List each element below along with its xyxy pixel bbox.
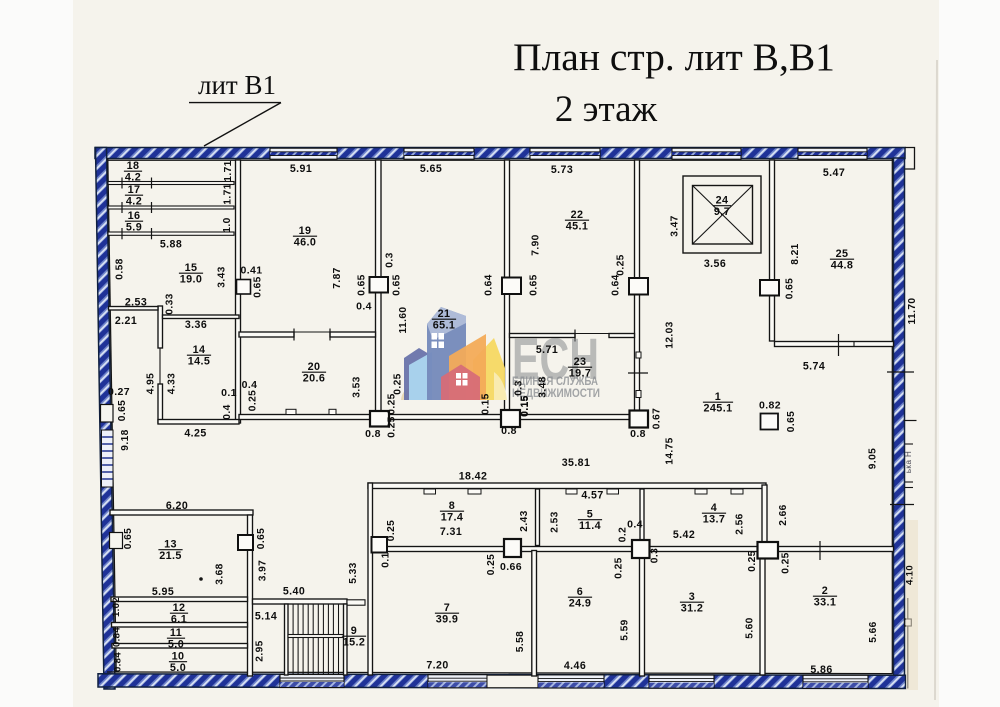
svg-text:0.27: 0.27	[108, 386, 130, 398]
svg-text:0.25: 0.25	[747, 550, 758, 571]
svg-text:5.66: 5.66	[868, 621, 879, 642]
svg-text:0.3: 0.3	[514, 380, 525, 395]
svg-text:5.91: 5.91	[290, 163, 312, 175]
svg-text:2.43: 2.43	[519, 510, 530, 531]
svg-text:0.82: 0.82	[759, 400, 781, 412]
svg-text:0.25: 0.25	[614, 557, 625, 578]
svg-text:7.90: 7.90	[531, 234, 542, 255]
svg-text:17.4: 17.4	[441, 511, 464, 523]
svg-text:3: 3	[689, 591, 695, 603]
svg-text:2.53: 2.53	[125, 297, 147, 309]
svg-text:245.1: 245.1	[703, 402, 732, 414]
svg-text:4.33: 4.33	[167, 373, 178, 394]
svg-text:0.33: 0.33	[165, 293, 176, 314]
svg-text:ька Н: ька Н	[904, 451, 913, 473]
svg-text:14.5: 14.5	[188, 355, 211, 367]
svg-text:0.65: 0.65	[357, 274, 368, 295]
svg-text:3.97: 3.97	[258, 560, 269, 581]
svg-text:4.95: 4.95	[146, 373, 157, 394]
svg-text:0.84: 0.84	[113, 652, 124, 672]
svg-text:6.1: 6.1	[171, 613, 187, 625]
svg-text:7.87: 7.87	[332, 267, 343, 288]
svg-text:39.9: 39.9	[436, 613, 459, 625]
svg-text:21.5: 21.5	[159, 550, 182, 562]
svg-text:20: 20	[308, 361, 321, 373]
svg-text:6.20: 6.20	[166, 500, 188, 512]
svg-text:5.86: 5.86	[810, 664, 832, 676]
svg-text:17: 17	[128, 184, 141, 196]
svg-text:3.43: 3.43	[217, 266, 228, 287]
svg-text:0.4: 0.4	[356, 301, 372, 313]
svg-text:5.9: 5.9	[126, 221, 142, 233]
svg-text:0.65: 0.65	[392, 274, 403, 295]
svg-text:12: 12	[173, 602, 186, 614]
svg-text:2 этаж: 2 этаж	[555, 89, 658, 130]
svg-text:21: 21	[438, 308, 451, 320]
svg-text:4.10: 4.10	[905, 565, 916, 585]
svg-text:План стр. лит В,В1: План стр. лит В,В1	[513, 35, 835, 79]
svg-text:0.64: 0.64	[611, 274, 622, 295]
svg-text:0.65: 0.65	[785, 278, 796, 299]
svg-text:4.2: 4.2	[125, 171, 141, 183]
svg-text:1.02: 1.02	[111, 597, 122, 617]
svg-text:3.68: 3.68	[215, 563, 226, 584]
svg-text:33.1: 33.1	[814, 596, 837, 608]
svg-text:19.7: 19.7	[569, 367, 592, 379]
svg-text:4.2: 4.2	[126, 195, 142, 207]
svg-text:0.4: 0.4	[242, 379, 258, 391]
svg-text:0.8: 0.8	[501, 425, 517, 437]
svg-text:35.81: 35.81	[562, 457, 591, 469]
svg-text:5.47: 5.47	[823, 167, 845, 179]
svg-text:15: 15	[185, 262, 198, 274]
svg-text:5.40: 5.40	[283, 586, 305, 598]
svg-text:23: 23	[574, 356, 587, 368]
svg-text:5.65: 5.65	[420, 163, 442, 175]
svg-text:0.65: 0.65	[123, 528, 134, 549]
svg-text:0.66: 0.66	[500, 561, 522, 573]
svg-text:19: 19	[299, 225, 312, 237]
svg-text:7.31: 7.31	[440, 526, 462, 538]
svg-text:0.64: 0.64	[484, 274, 495, 295]
svg-text:0.15: 0.15	[481, 393, 492, 414]
svg-text:0.25: 0.25	[393, 373, 404, 394]
svg-text:0.1: 0.1	[381, 552, 392, 567]
svg-text:0.65: 0.65	[256, 528, 267, 549]
svg-text:4.46: 4.46	[564, 660, 586, 672]
svg-text:12.03: 12.03	[665, 321, 676, 349]
svg-text:1.71: 1.71	[223, 160, 234, 181]
svg-text:0.41: 0.41	[240, 265, 262, 277]
svg-text:5.0: 5.0	[170, 662, 186, 674]
svg-text:13.7: 13.7	[703, 513, 726, 525]
svg-text:20.6: 20.6	[303, 372, 326, 384]
svg-text:0.25: 0.25	[387, 393, 398, 414]
svg-text:3.56: 3.56	[704, 258, 726, 270]
svg-text:0.65: 0.65	[117, 400, 128, 421]
svg-text:16: 16	[128, 210, 141, 222]
svg-text:14: 14	[193, 344, 206, 356]
svg-text:0.25: 0.25	[386, 520, 397, 541]
svg-text:9.7: 9.7	[714, 206, 730, 218]
svg-text:13: 13	[164, 539, 177, 551]
svg-text:лит В1: лит В1	[198, 70, 276, 100]
svg-text:5.74: 5.74	[803, 361, 825, 373]
svg-text:6: 6	[577, 586, 583, 598]
svg-text:0.58: 0.58	[115, 258, 126, 279]
svg-text:22: 22	[571, 209, 584, 221]
svg-text:0.8: 0.8	[630, 428, 646, 440]
svg-text:4: 4	[711, 502, 717, 514]
svg-text:5: 5	[587, 509, 593, 521]
svg-text:7.20: 7.20	[426, 660, 448, 672]
svg-text:2.66: 2.66	[778, 504, 789, 525]
svg-text:9: 9	[351, 625, 357, 637]
svg-text:5.33: 5.33	[348, 562, 359, 583]
svg-text:5.73: 5.73	[551, 164, 573, 176]
svg-text:19.0: 19.0	[180, 273, 203, 285]
svg-text:5.95: 5.95	[152, 586, 174, 598]
svg-text:18.42: 18.42	[459, 471, 488, 483]
svg-text:46.0: 46.0	[294, 236, 317, 248]
svg-text:5.0: 5.0	[168, 638, 184, 650]
svg-text:5.60: 5.60	[745, 617, 756, 638]
svg-text:0.25: 0.25	[248, 390, 259, 411]
svg-text:11.60: 11.60	[398, 307, 409, 334]
svg-text:3.48: 3.48	[538, 376, 549, 397]
svg-text:0.84: 0.84	[112, 627, 123, 647]
svg-text:4.25: 4.25	[184, 428, 206, 440]
svg-text:11.70: 11.70	[907, 298, 918, 325]
svg-text:1.0: 1.0	[222, 217, 233, 232]
svg-text:65.1: 65.1	[433, 319, 456, 331]
svg-text:14.75: 14.75	[665, 437, 676, 465]
svg-text:0.65: 0.65	[529, 274, 540, 295]
svg-text:10: 10	[172, 651, 185, 663]
svg-text:0.25: 0.25	[387, 416, 398, 437]
svg-text:3.36: 3.36	[185, 319, 207, 331]
svg-text:3.47: 3.47	[670, 215, 681, 236]
svg-text:2: 2	[822, 585, 828, 597]
svg-text:31.2: 31.2	[681, 602, 704, 614]
svg-text:0.4: 0.4	[627, 519, 643, 531]
svg-text:11: 11	[170, 627, 182, 639]
svg-text:0.25: 0.25	[781, 552, 792, 573]
svg-text:5.14: 5.14	[255, 611, 277, 623]
svg-text:2.53: 2.53	[550, 511, 561, 532]
svg-text:2.21: 2.21	[115, 315, 137, 327]
svg-text:2.95: 2.95	[255, 640, 266, 661]
svg-text:0.3: 0.3	[385, 252, 396, 267]
svg-text:5.59: 5.59	[620, 619, 631, 640]
svg-text:0.3: 0.3	[650, 548, 661, 563]
svg-text:0.4: 0.4	[222, 404, 233, 419]
svg-text:5.71: 5.71	[536, 344, 558, 356]
svg-text:2.56: 2.56	[735, 513, 746, 534]
svg-text:0.65: 0.65	[253, 276, 264, 297]
svg-text:25: 25	[836, 248, 849, 260]
svg-text:3.53: 3.53	[352, 376, 363, 397]
svg-text:8: 8	[449, 500, 455, 512]
svg-text:0.67: 0.67	[652, 408, 663, 429]
svg-text:5.42: 5.42	[673, 529, 695, 541]
svg-text:8.21: 8.21	[790, 243, 801, 264]
svg-text:0.2: 0.2	[618, 527, 629, 542]
svg-text:0.8: 0.8	[365, 428, 381, 440]
svg-text:24.9: 24.9	[569, 597, 592, 609]
svg-text:0.25: 0.25	[486, 554, 497, 575]
svg-text:9.05: 9.05	[868, 448, 879, 469]
svg-text:45.1: 45.1	[566, 220, 589, 232]
svg-text:1: 1	[715, 391, 721, 403]
svg-text:5.88: 5.88	[160, 239, 182, 251]
svg-text:5.58: 5.58	[515, 631, 526, 652]
svg-text:44.8: 44.8	[831, 259, 854, 271]
svg-text:0.25: 0.25	[616, 254, 627, 275]
svg-text:24: 24	[716, 195, 729, 207]
svg-text:1.71: 1.71	[223, 183, 234, 204]
svg-text:15.2: 15.2	[343, 636, 366, 648]
svg-text:4.57: 4.57	[581, 490, 603, 502]
svg-text:0.15: 0.15	[520, 395, 531, 416]
svg-text:7: 7	[444, 602, 450, 614]
svg-text:0.1: 0.1	[221, 387, 237, 399]
svg-text:18: 18	[127, 160, 140, 172]
svg-text:11.4: 11.4	[579, 520, 601, 532]
svg-text:9.18: 9.18	[120, 429, 131, 450]
svg-text:0.65: 0.65	[786, 411, 797, 432]
